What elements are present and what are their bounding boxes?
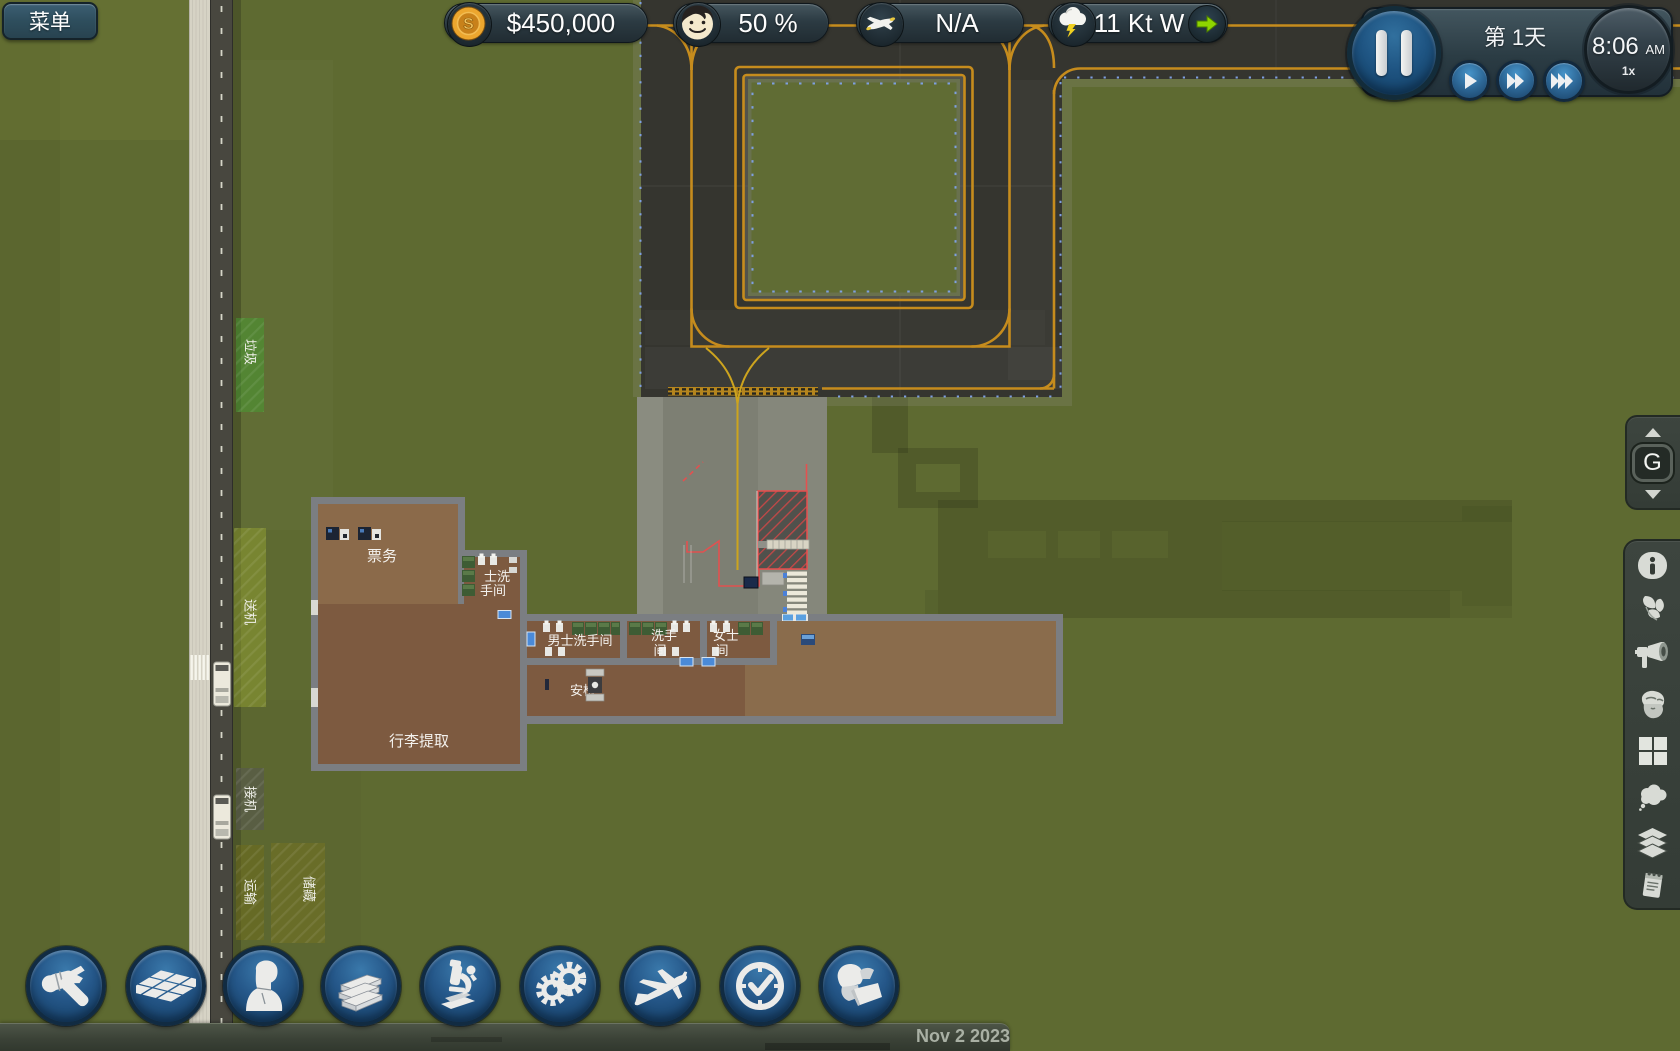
svg-text:间: 间: [653, 643, 666, 658]
svg-text:票务: 票务: [367, 548, 397, 565]
svg-text:接机: 接机: [243, 786, 258, 812]
svg-text:洗手: 洗手: [651, 628, 677, 643]
svg-text:送机: 送机: [243, 599, 258, 625]
svg-text:S: S: [463, 16, 474, 33]
svg-text:储藏: 储藏: [302, 876, 317, 902]
svg-text:行李提取: 行李提取: [389, 733, 449, 750]
svg-text:运输: 运输: [243, 879, 258, 905]
svg-text:男士洗手间: 男士洗手间: [547, 633, 612, 648]
svg-text:士洗: 士洗: [484, 569, 510, 584]
svg-text:女士: 女士: [713, 628, 739, 643]
svg-text:手间: 手间: [480, 583, 506, 598]
svg-text:垃圾: 垃圾: [243, 339, 258, 365]
svg-text:间: 间: [715, 643, 728, 658]
